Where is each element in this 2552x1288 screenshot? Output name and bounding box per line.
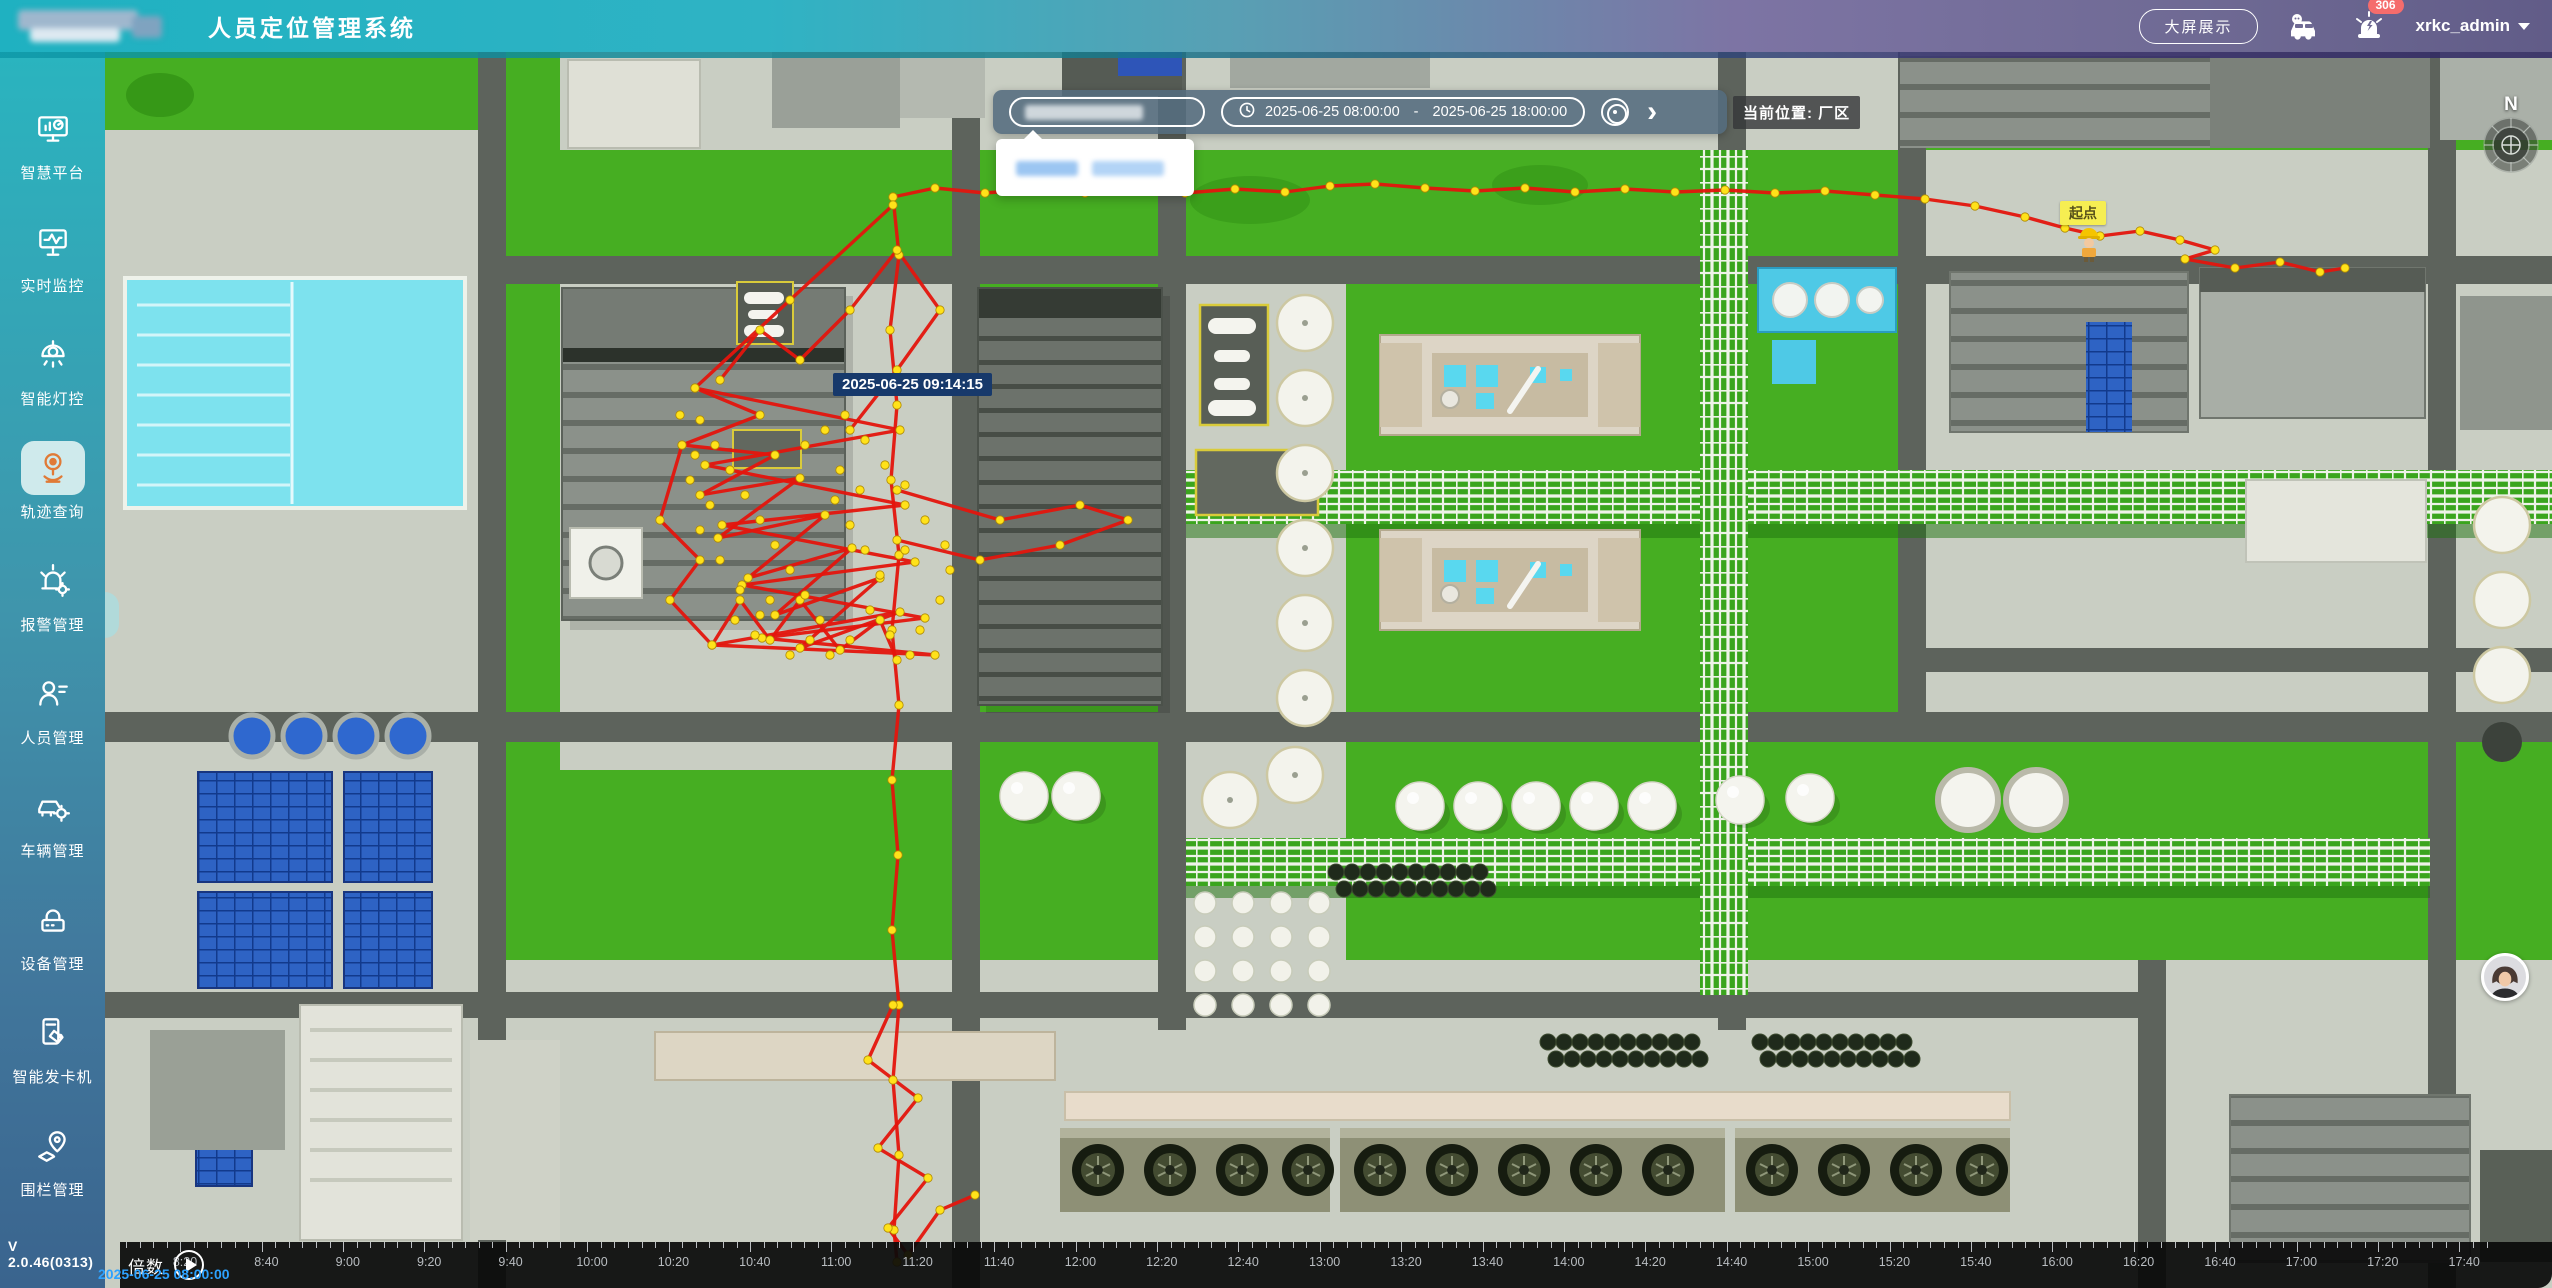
timeline-tick-label: 17:20 [2367, 1255, 2398, 1269]
sidebar-item-label: 智能灯控 [20, 388, 84, 409]
track-time-tooltip: 2025-06-25 09:14:15 [833, 373, 992, 396]
play-chevron-icon[interactable]: › [1647, 99, 1657, 125]
compass-dial [2482, 116, 2540, 174]
version-label: V 2.0.46(0313) [8, 1238, 105, 1270]
sidebar-item-card-machine[interactable]: 智能发卡机 [0, 990, 105, 1103]
timeline-tick-label: 10:40 [739, 1255, 770, 1269]
sidebar-item-label: 实时监控 [20, 275, 84, 296]
sidebar-item-track-query[interactable]: 轨迹查询 [0, 425, 105, 538]
sidebar-item-realtime-monitor[interactable]: 实时监控 [0, 199, 105, 312]
blurred-search-text [1025, 105, 1143, 120]
vehicle-icon [21, 780, 85, 834]
sidebar-item-smart-light[interactable]: 智能灯控 [0, 312, 105, 425]
header: 人员定位管理系统 大屏展示 306 xrkc_ad [0, 0, 2552, 52]
sidebar: 智慧平台实时监控智能灯控轨迹查询报警管理人员管理车辆管理设备管理智能发卡机围栏管… [0, 52, 105, 1288]
locate-target-icon[interactable] [1601, 98, 1629, 126]
sidebar-item-device[interactable]: 设备管理 [0, 877, 105, 990]
fence-icon [21, 1119, 85, 1173]
user-menu[interactable]: xrkc_admin [2416, 16, 2531, 36]
timeline-tick-label: 13:40 [1472, 1255, 1503, 1269]
timeline-tick-label: 9:20 [417, 1255, 441, 1269]
current-playback-time: 2025-06-25 08:00:00 [98, 1266, 230, 1282]
timeline-tick-label: 17:00 [2286, 1255, 2317, 1269]
sidebar-item-label: 围栏管理 [20, 1179, 84, 1200]
timeline-tick-label: 10:00 [576, 1255, 607, 1269]
timeline-tick-label: 11:40 [984, 1255, 1014, 1269]
compass-north-label: N [2504, 94, 2518, 115]
app-title: 人员定位管理系统 [208, 9, 416, 43]
vehicle-icon[interactable] [2288, 9, 2322, 43]
app-root: 人员定位管理系统 大屏展示 306 xrkc_ad [0, 0, 2552, 1288]
person-search-input[interactable] [1009, 97, 1205, 127]
sidebar-item-person[interactable]: 人员管理 [0, 651, 105, 764]
current-location-label: 当前位置: 厂区 [1733, 96, 1860, 129]
sidebar-item-label: 报警管理 [20, 614, 84, 635]
dashboard-monitor-icon [21, 102, 85, 156]
timeline-tick-label: 17:40 [2449, 1255, 2480, 1269]
realtime-monitor-icon [21, 215, 85, 269]
sidebar-item-label: 车辆管理 [20, 840, 84, 861]
timeline-tick-label: 14:00 [1553, 1255, 1584, 1269]
map-canvas[interactable] [0, 0, 2552, 1288]
sidebar-nav: 智慧平台实时监控智能灯控轨迹查询报警管理人员管理车辆管理设备管理智能发卡机围栏管… [0, 52, 105, 1216]
header-accent-strip [0, 52, 2552, 58]
timeline-bar[interactable]: 8:208:409:009:209:4010:0010:2010:4011:00… [120, 1242, 2552, 1288]
date-separator: - [1414, 104, 1419, 120]
clock-icon [1239, 102, 1255, 122]
card-machine-icon [21, 1006, 85, 1060]
timeline-tick-label: 15:20 [1879, 1255, 1910, 1269]
sidebar-item-label: 人员管理 [20, 727, 84, 748]
timeline-tick-label: 14:40 [1716, 1255, 1747, 1269]
person-icon [21, 667, 85, 721]
timeline-tick-label: 8:40 [254, 1255, 278, 1269]
alarm-icon [21, 554, 85, 608]
sidebar-item-label: 设备管理 [20, 953, 84, 974]
sidebar-collapse-handle[interactable] [105, 592, 119, 638]
timeline-tick-label: 12:40 [1228, 1255, 1259, 1269]
timeline-tick-label: 11:00 [821, 1255, 851, 1269]
sidebar-item-dashboard-monitor[interactable]: 智慧平台 [0, 86, 105, 199]
search-toolbar: 2025-06-25 08:00:00 - 2025-06-25 18:00:0… [993, 90, 1727, 134]
compass[interactable]: N [2481, 94, 2541, 179]
timeline-tick-label: 9:00 [336, 1255, 360, 1269]
search-suggestion-dropdown[interactable] [996, 139, 1194, 196]
timeline-tick-label: 13:20 [1390, 1255, 1421, 1269]
timeline-tick-label: 16:20 [2123, 1255, 2154, 1269]
smart-light-icon [21, 328, 85, 382]
person-avatar-marker[interactable] [2481, 953, 2529, 1001]
sidebar-item-vehicle[interactable]: 车辆管理 [0, 764, 105, 877]
sidebar-item-label: 智慧平台 [20, 162, 84, 183]
alarm-badge: 306 [2368, 0, 2404, 14]
start-point-label: 起点 [2060, 201, 2106, 225]
timeline-tick-label: 15:40 [1960, 1255, 1991, 1269]
date-end: 2025-06-25 18:00:00 [1433, 104, 1568, 120]
timeline-tick-label: 13:00 [1309, 1255, 1340, 1269]
timeline-tick-label: 14:20 [1635, 1255, 1666, 1269]
sidebar-item-label: 智能发卡机 [12, 1066, 92, 1087]
blurred-suggestion-item [1092, 161, 1164, 176]
app-logo [12, 8, 172, 44]
device-icon [21, 893, 85, 947]
timeline-tick-label: 16:00 [2042, 1255, 2073, 1269]
timeline-tick-label: 12:00 [1065, 1255, 1096, 1269]
big-screen-button[interactable]: 大屏展示 [2139, 9, 2257, 44]
timeline-tick-label: 12:20 [1146, 1255, 1177, 1269]
blurred-suggestion-item [1016, 161, 1078, 176]
username: xrkc_admin [2416, 16, 2511, 36]
timeline-tick-label: 15:00 [1797, 1255, 1828, 1269]
sidebar-item-fence[interactable]: 围栏管理 [0, 1103, 105, 1216]
timeline-tick-label: 16:40 [2204, 1255, 2235, 1269]
chevron-down-icon [2518, 23, 2530, 30]
sidebar-item-label: 轨迹查询 [20, 501, 84, 522]
worker-marker[interactable] [2076, 226, 2102, 262]
alarm-icon[interactable]: 306 [2352, 9, 2386, 43]
track-query-icon [21, 441, 85, 495]
sidebar-item-alarm[interactable]: 报警管理 [0, 538, 105, 651]
timeline-tick-label: 9:40 [498, 1255, 522, 1269]
date-start: 2025-06-25 08:00:00 [1265, 104, 1400, 120]
date-range-picker[interactable]: 2025-06-25 08:00:00 - 2025-06-25 18:00:0… [1221, 97, 1585, 127]
timeline-tick-label: 10:20 [658, 1255, 689, 1269]
timeline-tick-label: 11:20 [902, 1255, 932, 1269]
